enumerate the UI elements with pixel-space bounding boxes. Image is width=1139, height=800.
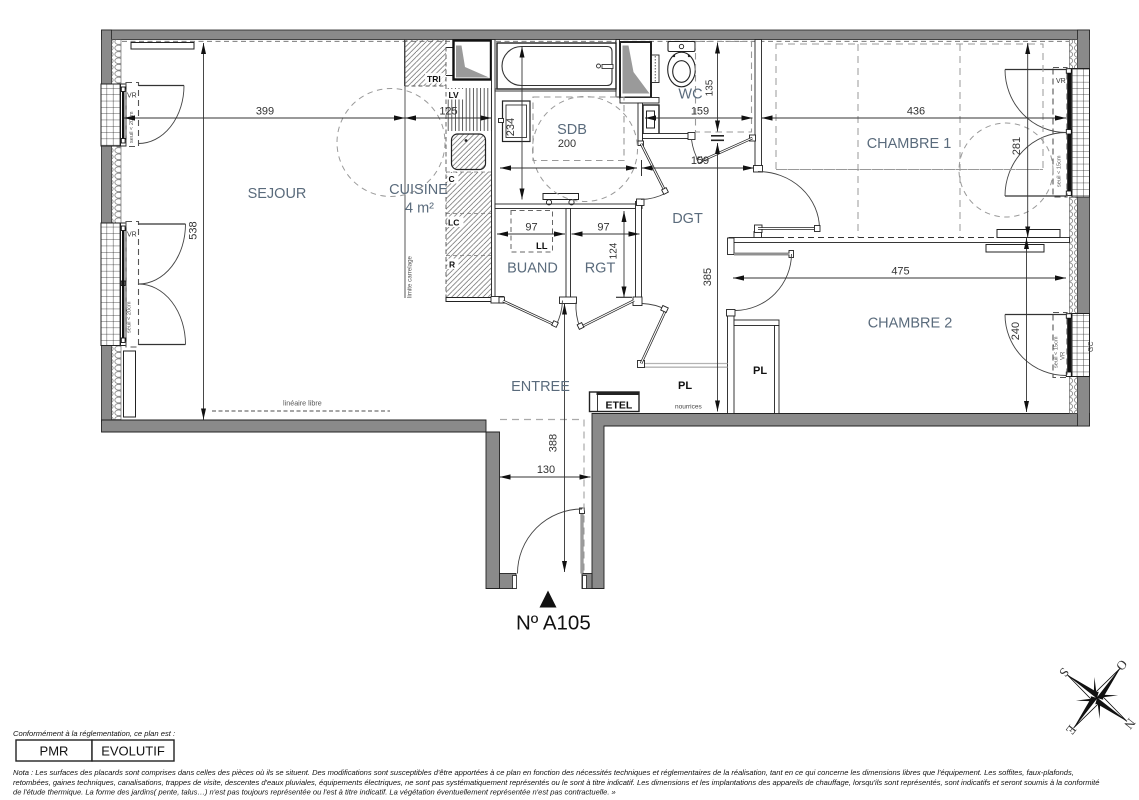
svg-text:VR: VR: [1061, 351, 1067, 360]
svg-text:SDB: SDB: [557, 122, 587, 138]
svg-text:LC: LC: [448, 218, 459, 228]
svg-text:PMR: PMR: [40, 744, 69, 759]
svg-text:LV: LV: [449, 90, 460, 100]
svg-text:RGT: RGT: [585, 261, 616, 277]
svg-text:130: 130: [537, 464, 555, 476]
svg-text:135: 135: [705, 79, 716, 96]
svg-text:4 m²: 4 m²: [405, 201, 434, 217]
svg-text:388: 388: [548, 434, 560, 452]
svg-text:Conformément à la réglementati: Conformément à la réglementation, ce pla…: [13, 729, 175, 738]
svg-text:436: 436: [907, 106, 925, 118]
svg-text:EVOLUTIF: EVOLUTIF: [101, 744, 165, 759]
svg-text:C: C: [449, 174, 455, 184]
svg-text:385: 385: [702, 268, 714, 286]
svg-text:GC: GC: [1088, 342, 1095, 353]
svg-text:124: 124: [609, 242, 620, 259]
svg-text:retombées, gaines techniques,: retombées, gaines techniques, canalisati…: [13, 778, 1099, 787]
svg-text:538: 538: [188, 221, 200, 239]
svg-text:VR: VR: [127, 93, 137, 100]
svg-text:ETEL: ETEL: [606, 400, 633, 412]
svg-text:399: 399: [256, 106, 274, 118]
svg-text:125: 125: [439, 106, 457, 118]
svg-text:CUISINE: CUISINE: [389, 182, 448, 198]
svg-text:97: 97: [597, 222, 609, 234]
svg-text:240: 240: [1010, 322, 1022, 340]
svg-text:nourrices: nourrices: [675, 404, 702, 411]
svg-text:159: 159: [691, 155, 709, 167]
svg-text:LL: LL: [536, 241, 548, 252]
svg-text:PL: PL: [753, 365, 767, 377]
svg-text:VR: VR: [1056, 78, 1066, 85]
svg-text:linéaire libre: linéaire libre: [283, 399, 322, 408]
svg-text:WC: WC: [678, 87, 702, 103]
svg-text:PL: PL: [678, 380, 692, 392]
svg-text:DGT: DGT: [672, 211, 703, 227]
svg-text:seuil < 15cm: seuil < 15cm: [1054, 336, 1060, 368]
svg-text:CHAMBRE 1: CHAMBRE 1: [867, 136, 952, 152]
svg-text:200: 200: [558, 138, 576, 150]
svg-text:Nº A105: Nº A105: [516, 612, 591, 635]
svg-text:limite carrelage: limite carrelage: [407, 255, 414, 298]
svg-text:159: 159: [691, 106, 709, 118]
svg-text:Nota : Les surfaces des placar: Nota : Les surfaces des placards sont co…: [13, 768, 1074, 777]
svg-text:234: 234: [505, 118, 517, 136]
svg-text:de l'étude thermique. La forme: de l'étude thermique. La forme des jardi…: [13, 788, 616, 797]
svg-text:seuil < 15cm: seuil < 15cm: [1057, 155, 1063, 187]
svg-text:SEJOUR: SEJOUR: [248, 186, 307, 202]
svg-text:ENTREE: ENTREE: [511, 379, 570, 395]
svg-text:281: 281: [1011, 137, 1023, 155]
svg-text:CHAMBRE 2: CHAMBRE 2: [868, 316, 953, 332]
svg-text:VR: VR: [127, 232, 137, 239]
svg-text:seuil < 20cm: seuil < 20cm: [127, 301, 133, 333]
svg-text:BUAND: BUAND: [507, 261, 558, 277]
svg-text:R: R: [449, 260, 455, 270]
svg-text:TRI: TRI: [427, 74, 441, 84]
svg-text:475: 475: [891, 266, 909, 278]
svg-text:97: 97: [525, 222, 537, 234]
